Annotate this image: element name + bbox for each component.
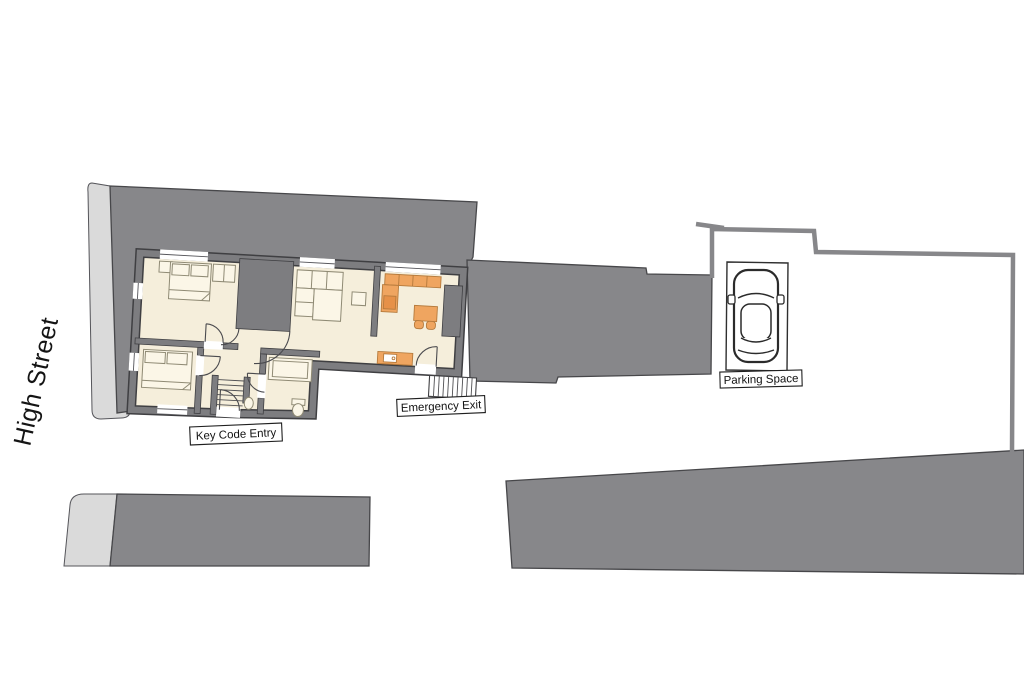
kitchen-table <box>414 305 438 321</box>
chair-icon <box>426 321 435 329</box>
emergency-exit-door <box>415 364 437 375</box>
chair-icon <box>414 320 423 328</box>
bedroom2-furniture <box>142 349 193 390</box>
basin-icon <box>244 397 254 409</box>
emergency-exit-label: Emergency Exit <box>397 396 486 417</box>
car-icon <box>728 270 784 362</box>
hob-icon <box>383 296 396 310</box>
key-code-entry-label: Key Code Entry <box>190 423 283 445</box>
external-emergency-stairs <box>428 375 476 399</box>
pavement-lower <box>64 494 117 566</box>
svg-text:Parking Space: Parking Space <box>723 373 798 387</box>
building-mass-lower-left <box>110 494 370 566</box>
parking-space-label: Parking Space <box>720 370 802 388</box>
site-plan: Key Code Entry Emergency Exit Parking Sp… <box>0 0 1024 683</box>
service-corridor-mass <box>467 260 712 383</box>
void-block <box>236 259 294 332</box>
site-plan-page: Key Code Entry Emergency Exit Parking Sp… <box>0 0 1024 683</box>
